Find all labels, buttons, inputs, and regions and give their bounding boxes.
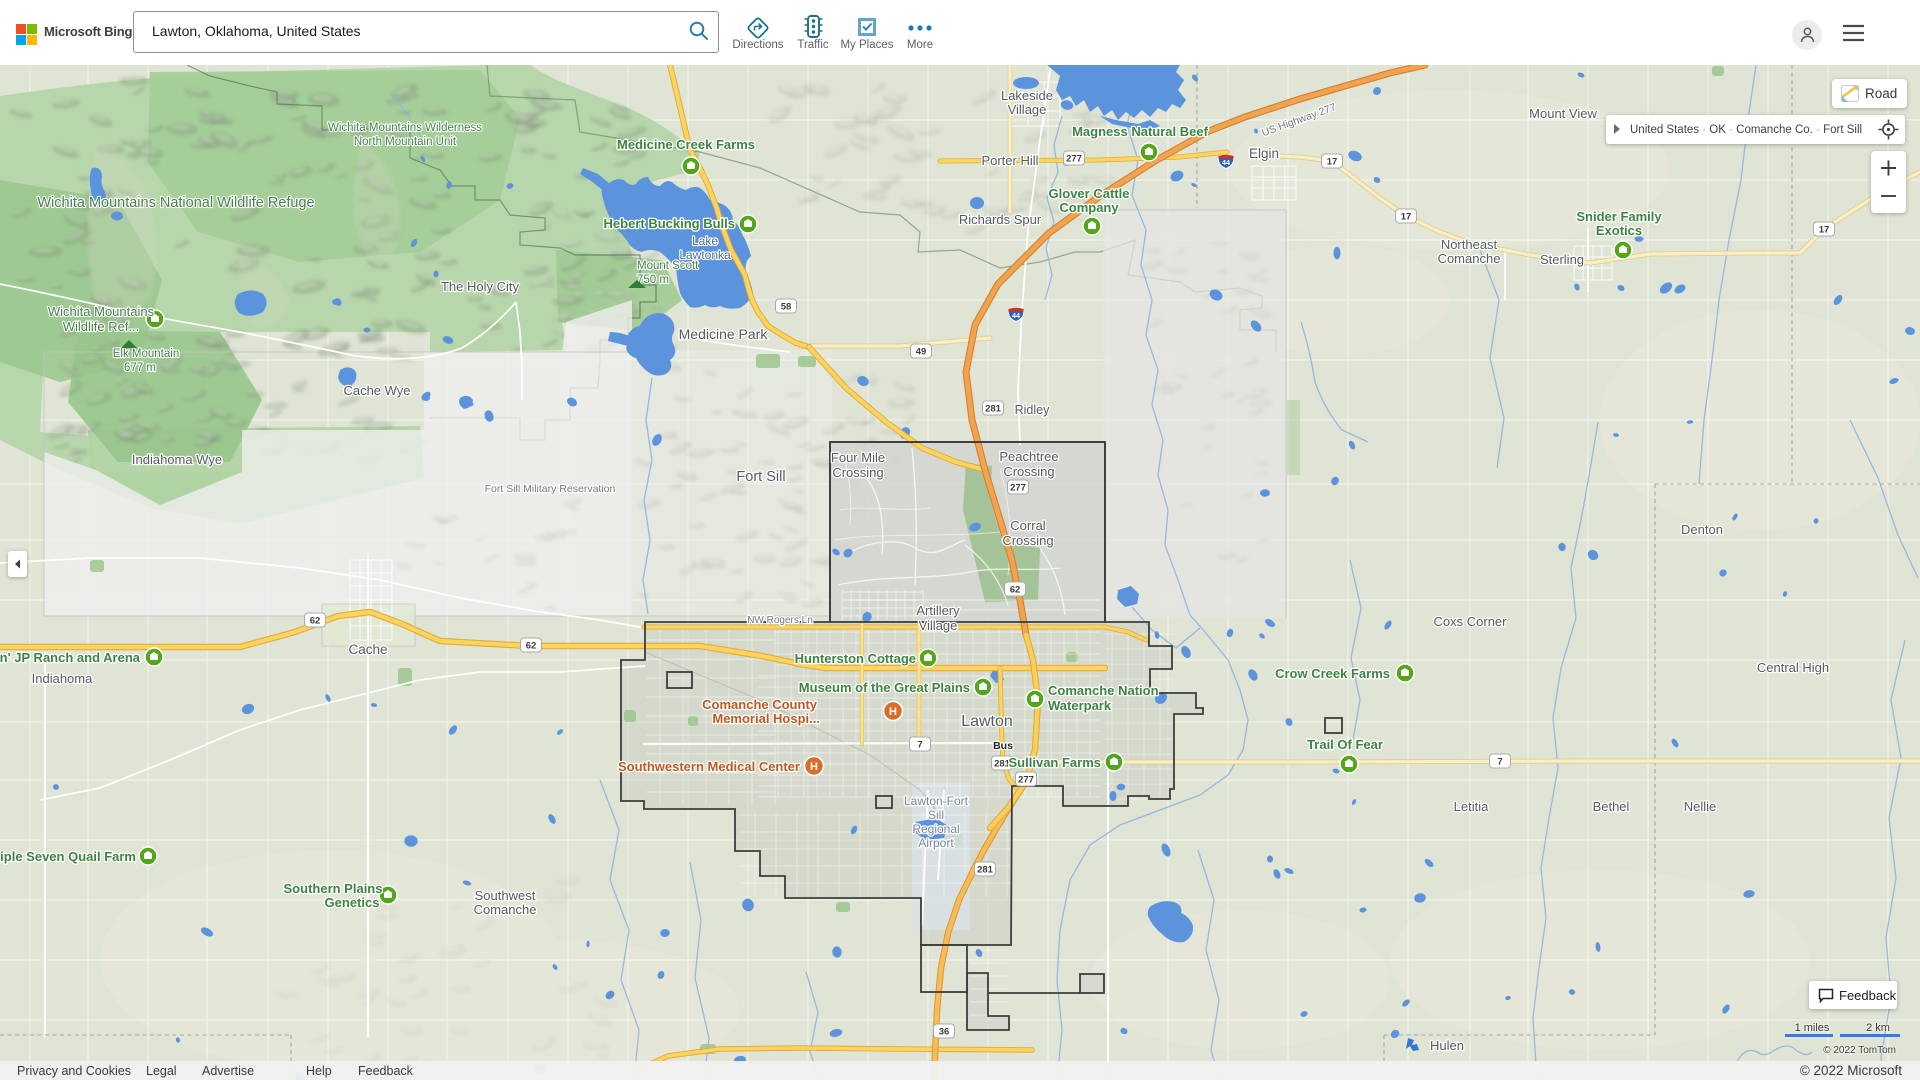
svg-text:Elgin: Elgin [1249,146,1279,161]
svg-text:49: 49 [916,347,927,358]
svg-text:North Mountain Unit: North Mountain Unit [354,136,457,148]
svg-text:Southwest: Southwest [475,888,536,903]
svg-text:Airport: Airport [918,836,954,850]
svg-text:Lakeside: Lakeside [1001,88,1053,103]
svg-text:Peachtree: Peachtree [999,449,1058,464]
svg-text:Memorial Hospi...: Memorial Hospi... [712,711,820,726]
svg-text:Cache Wye: Cache Wye [343,383,410,398]
svg-text:Nellie: Nellie [1684,799,1717,814]
svg-text:Comanche: Comanche [474,902,537,917]
svg-text:277: 277 [1010,483,1026,494]
svg-text:Richards Spur: Richards Spur [959,212,1042,227]
svg-text:281: 281 [977,865,994,876]
svg-text:36: 36 [939,1027,950,1038]
svg-text:Triple Seven Quail Farm: Triple Seven Quail Farm [0,849,136,864]
svg-text:Bus: Bus [993,740,1013,752]
svg-text:Fort Sill Military Reservation: Fort Sill Military Reservation [485,483,616,495]
svg-text:Sterling: Sterling [1540,252,1584,267]
svg-text:Mount View: Mount View [1529,106,1597,121]
svg-text:Sullivan Farms: Sullivan Farms [1009,755,1101,770]
svg-text:277: 277 [1066,154,1082,165]
svg-text:62: 62 [526,641,537,652]
svg-text:Trail Of Fear: Trail Of Fear [1307,737,1383,752]
svg-text:Northeast: Northeast [1441,237,1498,252]
svg-text:Southern Plains: Southern Plains [284,881,383,896]
svg-text:281: 281 [985,404,1002,415]
svg-text:62: 62 [1010,585,1021,596]
svg-text:Exotics: Exotics [1596,223,1642,238]
svg-text:17: 17 [1819,225,1830,236]
svg-text:Regional: Regional [912,822,959,836]
svg-text:Crossing: Crossing [1003,464,1054,479]
svg-text:Lawton-Fort: Lawton-Fort [904,794,969,808]
svg-text:Lawton: Lawton [961,713,1013,730]
svg-text:NW Rogers Ln: NW Rogers Ln [747,615,813,626]
svg-text:62: 62 [310,616,321,627]
svg-text:H: H [810,761,818,773]
svg-text:677 m: 677 m [124,362,156,374]
svg-text:Porter Hill: Porter Hill [981,153,1038,168]
svg-text:Cache: Cache [348,642,387,657]
svg-text:H: H [889,706,897,718]
svg-text:58: 58 [781,302,792,313]
svg-text:Hunterston Cottage: Hunterston Cottage [795,651,916,666]
svg-text:Indiahoma Wye: Indiahoma Wye [132,452,222,467]
svg-text:Crossing: Crossing [1002,533,1053,548]
svg-text:44: 44 [1222,158,1230,167]
svg-text:Corral: Corral [1010,518,1046,533]
svg-text:The Holy City: The Holy City [441,279,520,294]
svg-text:Central High: Central High [1757,660,1829,675]
svg-text:Waterpark: Waterpark [1048,698,1112,713]
svg-text:Wichita Mountains Wilderness: Wichita Mountains Wilderness [328,122,482,134]
svg-text:ckin' JP Ranch and Arena: ckin' JP Ranch and Arena [0,650,141,665]
svg-text:Genetics: Genetics [325,895,380,910]
svg-text:Company: Company [1059,200,1119,215]
svg-text:Crossing: Crossing [832,465,883,480]
svg-text:Hebert Bucking Bulls: Hebert Bucking Bulls [604,216,735,231]
svg-text:750 m: 750 m [637,274,669,286]
svg-text:17: 17 [1327,157,1338,168]
svg-text:Comanche Nation: Comanche Nation [1048,683,1159,698]
svg-text:Lawtonka: Lawtonka [679,248,731,262]
svg-text:7: 7 [1497,757,1502,768]
svg-text:Denton: Denton [1681,522,1723,537]
svg-text:Comanche County: Comanche County [702,697,818,712]
svg-text:Wichita Mountains: Wichita Mountains [48,304,155,319]
svg-text:277: 277 [1018,775,1034,786]
svg-text:Letitia: Letitia [1454,799,1489,814]
svg-text:44: 44 [1012,311,1020,320]
svg-text:Wildlife Ref...: Wildlife Ref... [63,319,140,334]
svg-text:Wichita Mountains National Wil: Wichita Mountains National Wildlife Refu… [37,195,314,211]
svg-text:Snider Family: Snider Family [1576,209,1662,224]
svg-text:Comanche: Comanche [1438,251,1501,266]
svg-text:Lake: Lake [692,234,718,248]
svg-text:Sill: Sill [928,808,944,822]
svg-text:Indiahoma: Indiahoma [32,671,93,686]
svg-text:7: 7 [917,740,922,751]
svg-text:Coxs Corner: Coxs Corner [1434,614,1508,629]
svg-text:Glover Cattle: Glover Cattle [1049,186,1130,201]
svg-text:Artillery: Artillery [916,603,960,618]
svg-text:Village: Village [919,618,958,633]
svg-text:Fort Sill: Fort Sill [736,469,785,485]
svg-text:Medicine Creek Farms: Medicine Creek Farms [617,137,755,152]
svg-text:Magness Natural Beef: Magness Natural Beef [1072,124,1208,139]
svg-text:Southwestern Medical Center: Southwestern Medical Center [618,759,800,774]
svg-text:Hulen: Hulen [1430,1038,1464,1053]
svg-text:Medicine Park: Medicine Park [679,326,769,342]
svg-text:Bethel: Bethel [1593,799,1630,814]
svg-text:Museum of the Great Plains: Museum of the Great Plains [799,680,970,695]
svg-text:17: 17 [1401,212,1412,223]
svg-text:Four Mile: Four Mile [831,450,885,465]
svg-text:Elk Mountain: Elk Mountain [113,348,179,360]
svg-text:Ridley: Ridley [1015,403,1050,417]
svg-text:Crow Creek Farms: Crow Creek Farms [1275,666,1390,681]
svg-text:Village: Village [1008,102,1047,117]
